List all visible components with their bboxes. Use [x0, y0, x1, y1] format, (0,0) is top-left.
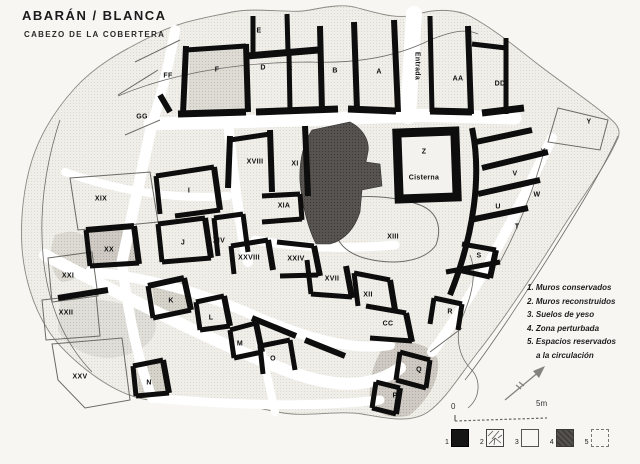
legend-item-2: 2. Muros reconstruidos [527, 295, 616, 309]
room-label-xiii: XIII [387, 234, 399, 241]
legend-swatches: 1 2 3 4 5 [445, 429, 609, 447]
swatch-muros-reconstruidos: 2 [480, 429, 504, 447]
scale-bar [455, 415, 547, 421]
room-label-k: K [168, 298, 173, 305]
room-label-xii: XII [363, 292, 372, 299]
swatch-suelos-de-yeso: 3 [515, 429, 539, 447]
page-title: ABARÁN / BLANCA [22, 8, 167, 23]
swatch-5-number: 5 [585, 439, 589, 447]
room-label-y: Y [587, 119, 592, 126]
swatch-2-cracked-icon [486, 429, 504, 447]
swatch-1-solid-black-icon [451, 429, 469, 447]
swatch-zona-perturbada: 4 [550, 429, 574, 447]
room-label-cc: CC [383, 321, 394, 328]
room-label-n: N [146, 380, 151, 387]
room-label-z: Z [422, 149, 427, 156]
site-plan-figure: ABARÁN / BLANCA CABEZO DE LA COBERTERA F… [0, 0, 640, 464]
room-label-xxiv: XXIV [287, 256, 304, 263]
cistern [397, 131, 457, 199]
room-label-s: S [477, 253, 482, 260]
swatch-3-plain-icon [521, 429, 539, 447]
room-label-r: R [447, 309, 452, 316]
room-label-xix: XIX [95, 196, 107, 203]
site-plan-drawing [0, 0, 640, 464]
room-label-l: L [209, 315, 214, 322]
swatch-4-number: 4 [550, 439, 554, 447]
swatch-espacios-circulacion: 5 [585, 429, 609, 447]
room-label-xxi: XXI [62, 273, 74, 280]
room-label-w: W [534, 192, 541, 199]
legend-item-3: 3. Suelos de yeso [527, 308, 616, 322]
swatch-3-number: 3 [515, 439, 519, 447]
room-label-q: Q [416, 367, 422, 374]
room-label-xviii: XVIII [247, 159, 264, 166]
room-label-xiv: XIV [213, 238, 225, 245]
legend: 1. Muros conservados 2. Muros reconstrui… [527, 281, 616, 362]
room-label-v: V [513, 171, 518, 178]
room-label-xxviii: XXVIII [238, 255, 260, 262]
swatch-muros-conservados: 1 [445, 429, 469, 447]
room-label-xxii: XXII [59, 310, 73, 317]
legend-item-5: 5. Espacios reservados [527, 335, 616, 349]
room-label-cisterna: Cisterna [409, 175, 439, 182]
room-label-m: M [237, 341, 243, 348]
room-label-j: J [181, 240, 185, 247]
swatch-4-dark-icon [556, 429, 574, 447]
page-subtitle: CABEZO DE LA COBERTERA [24, 30, 165, 39]
room-label-d: D [260, 65, 265, 72]
room-label-c: C [287, 66, 292, 73]
scale-max-label: 5m [536, 399, 547, 408]
room-label-a: A [376, 69, 381, 76]
room-label-aa: AA [453, 76, 464, 83]
room-label-xx: XX [104, 247, 114, 254]
room-label-ff: FF [163, 73, 172, 80]
room-label-u: U [495, 204, 500, 211]
room-label-b: B [332, 68, 337, 75]
room-label-xxv: XXV [73, 374, 88, 381]
room-label-t: T [515, 224, 520, 231]
swatch-2-number: 2 [480, 439, 484, 447]
north-arrow-icon [505, 366, 545, 400]
room-label-f: F [215, 67, 220, 74]
swatch-5-dotted-icon [591, 429, 609, 447]
swatch-1-number: 1 [445, 439, 449, 447]
legend-item-5-cont: a la circulación [527, 349, 616, 363]
legend-item-1: 1. Muros conservados [527, 281, 616, 295]
room-label-i: I [188, 188, 190, 195]
room-label-e: E [257, 28, 262, 35]
room-label-o: O [270, 356, 276, 363]
room-label-entrada: Entrada [414, 52, 421, 80]
room-label-xia: XIA [278, 203, 291, 210]
room-label-x: X [541, 149, 546, 156]
legend-item-4: 4. Zona perturbada [527, 322, 616, 336]
room-label-xi: XI [291, 161, 298, 168]
room-label-xvii: XVII [325, 276, 339, 283]
scale-zero-label: 0 [451, 402, 455, 411]
room-label-gg: GG [136, 114, 148, 121]
room-label-p: P [393, 393, 398, 400]
room-label-dd: DD [495, 81, 506, 88]
